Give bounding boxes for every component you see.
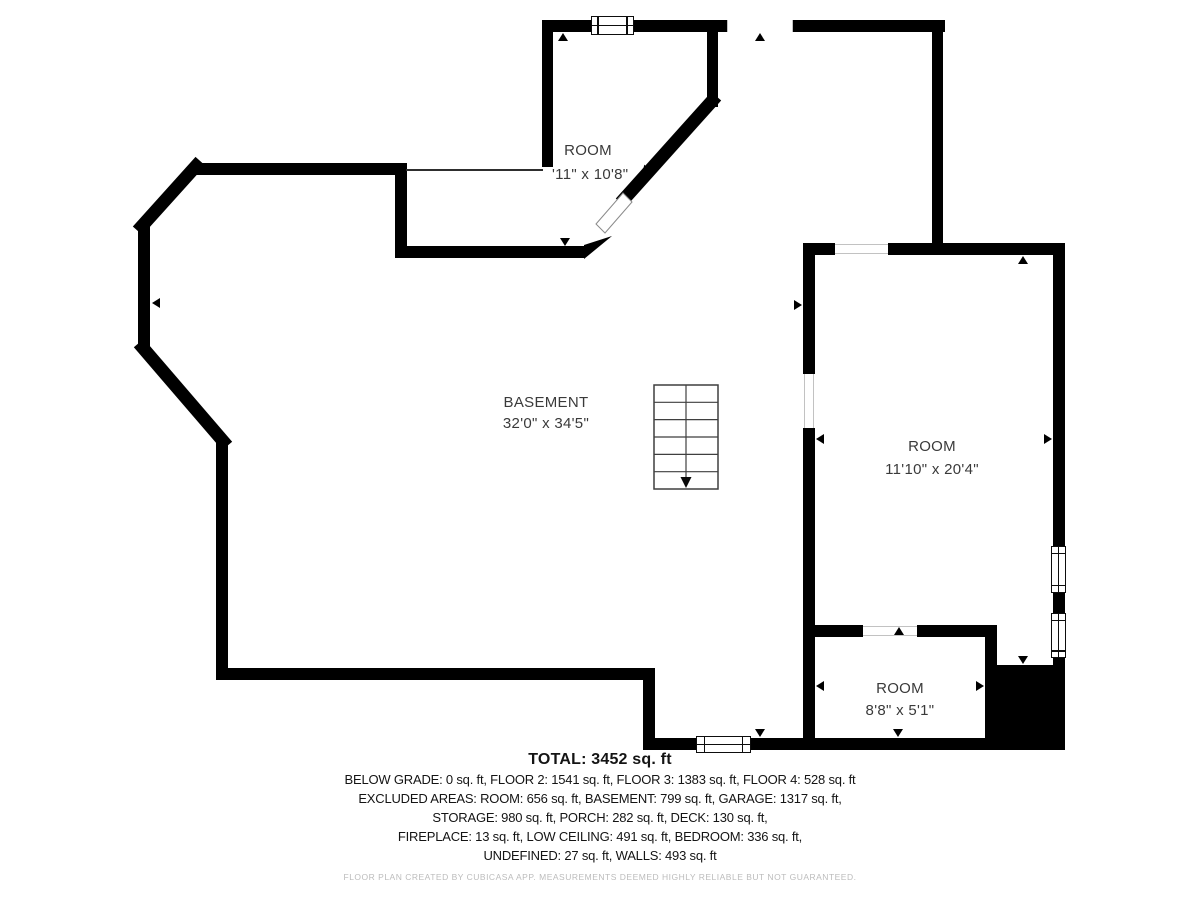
disclaimer-text: FLOOR PLAN CREATED BY CUBICASA APP. MEAS… bbox=[0, 872, 1200, 882]
wall-diagonal bbox=[142, 166, 196, 226]
door-jamb bbox=[804, 374, 805, 428]
door-jamb bbox=[835, 244, 888, 245]
room-label: ROOM bbox=[800, 680, 1000, 697]
door-opening bbox=[596, 193, 632, 233]
room-label: ROOM bbox=[513, 142, 663, 159]
wall-segment bbox=[633, 20, 727, 32]
door-jamb bbox=[792, 20, 793, 32]
wall-segment bbox=[812, 625, 863, 637]
wall-segment bbox=[216, 668, 648, 680]
summary-line: FIREPLACE: 13 sq. ft, LOW CEILING: 491 s… bbox=[0, 827, 1200, 846]
wall-segment bbox=[643, 668, 655, 748]
stairs-icon bbox=[653, 384, 719, 491]
wall-segment bbox=[932, 20, 943, 255]
dimension-arrow-down bbox=[560, 238, 570, 246]
dimension-arrow-right bbox=[794, 300, 802, 310]
room-dimension: '11" x 10'8" bbox=[552, 166, 628, 183]
summary-line: UNDEFINED: 27 sq. ft, WALLS: 493 sq. ft bbox=[0, 846, 1200, 865]
wall-segment bbox=[643, 738, 698, 750]
window-cap bbox=[1051, 585, 1066, 587]
dimension-arrow-down bbox=[893, 729, 903, 737]
door-jamb bbox=[863, 635, 917, 636]
dimension-arrow-up bbox=[894, 627, 904, 635]
dimension-arrow-right bbox=[1044, 434, 1052, 444]
window-icon bbox=[1051, 546, 1066, 593]
floor-plan-canvas: ROOM '11" x 10'8" BASEMENT 32'0" x 34'5"… bbox=[0, 0, 1200, 900]
dimension-arrow-up bbox=[1018, 256, 1028, 264]
solid-fill-block bbox=[997, 665, 1065, 750]
wall-segment bbox=[395, 246, 585, 258]
dimension-arrow-left bbox=[152, 298, 160, 308]
wall-end-cap bbox=[584, 236, 612, 259]
room-label: ROOM bbox=[832, 438, 1032, 455]
door-jamb bbox=[813, 374, 814, 428]
dimension-arrow-diagonal bbox=[639, 165, 652, 178]
room-dimension: 11'10" x 20'4" bbox=[832, 461, 1032, 478]
total-area-text: TOTAL: 3452 sq. ft bbox=[0, 750, 1200, 770]
area-summary: TOTAL: 3452 sq. ft BELOW GRADE: 0 sq. ft… bbox=[0, 750, 1200, 865]
wall-segment bbox=[216, 437, 228, 677]
dimension-arrow-down bbox=[1018, 656, 1028, 664]
wall-segment bbox=[138, 225, 150, 352]
wall-segment bbox=[1053, 243, 1065, 548]
room-label: BASEMENT bbox=[446, 394, 646, 411]
summary-line: STORAGE: 980 sq. ft, PORCH: 282 sq. ft, … bbox=[0, 808, 1200, 827]
wall-segment bbox=[888, 243, 1065, 255]
door-jamb bbox=[835, 253, 888, 254]
door-jamb bbox=[863, 626, 917, 627]
wall-segment bbox=[707, 32, 718, 107]
wall-segment bbox=[793, 20, 945, 32]
dimension-arrow-up bbox=[558, 33, 568, 41]
window-cap bbox=[626, 16, 628, 35]
wall-segment bbox=[803, 243, 815, 374]
room-dimension: 8'8" x 5'1" bbox=[800, 702, 1000, 719]
wall-diagonal bbox=[143, 348, 223, 441]
summary-line: EXCLUDED AREAS: ROOM: 656 sq. ft, BASEME… bbox=[0, 789, 1200, 808]
room-dimension: 32'0" x 34'5" bbox=[446, 415, 646, 432]
window-cap bbox=[1051, 620, 1066, 622]
dimension-arrow-left bbox=[816, 434, 824, 444]
window-cap bbox=[1051, 553, 1066, 555]
wall-segment bbox=[195, 163, 407, 175]
wall-segment bbox=[1053, 591, 1065, 615]
dimension-arrow-down bbox=[755, 729, 765, 737]
dimension-arrow-up bbox=[755, 33, 765, 41]
window-icon bbox=[1051, 613, 1066, 658]
door-jamb bbox=[727, 20, 728, 32]
window-cap bbox=[597, 16, 599, 35]
wall-segment bbox=[395, 163, 407, 258]
summary-line: BELOW GRADE: 0 sq. ft, FLOOR 2: 1541 sq.… bbox=[0, 770, 1200, 789]
window-cap bbox=[1051, 650, 1066, 652]
window-icon bbox=[591, 16, 634, 35]
